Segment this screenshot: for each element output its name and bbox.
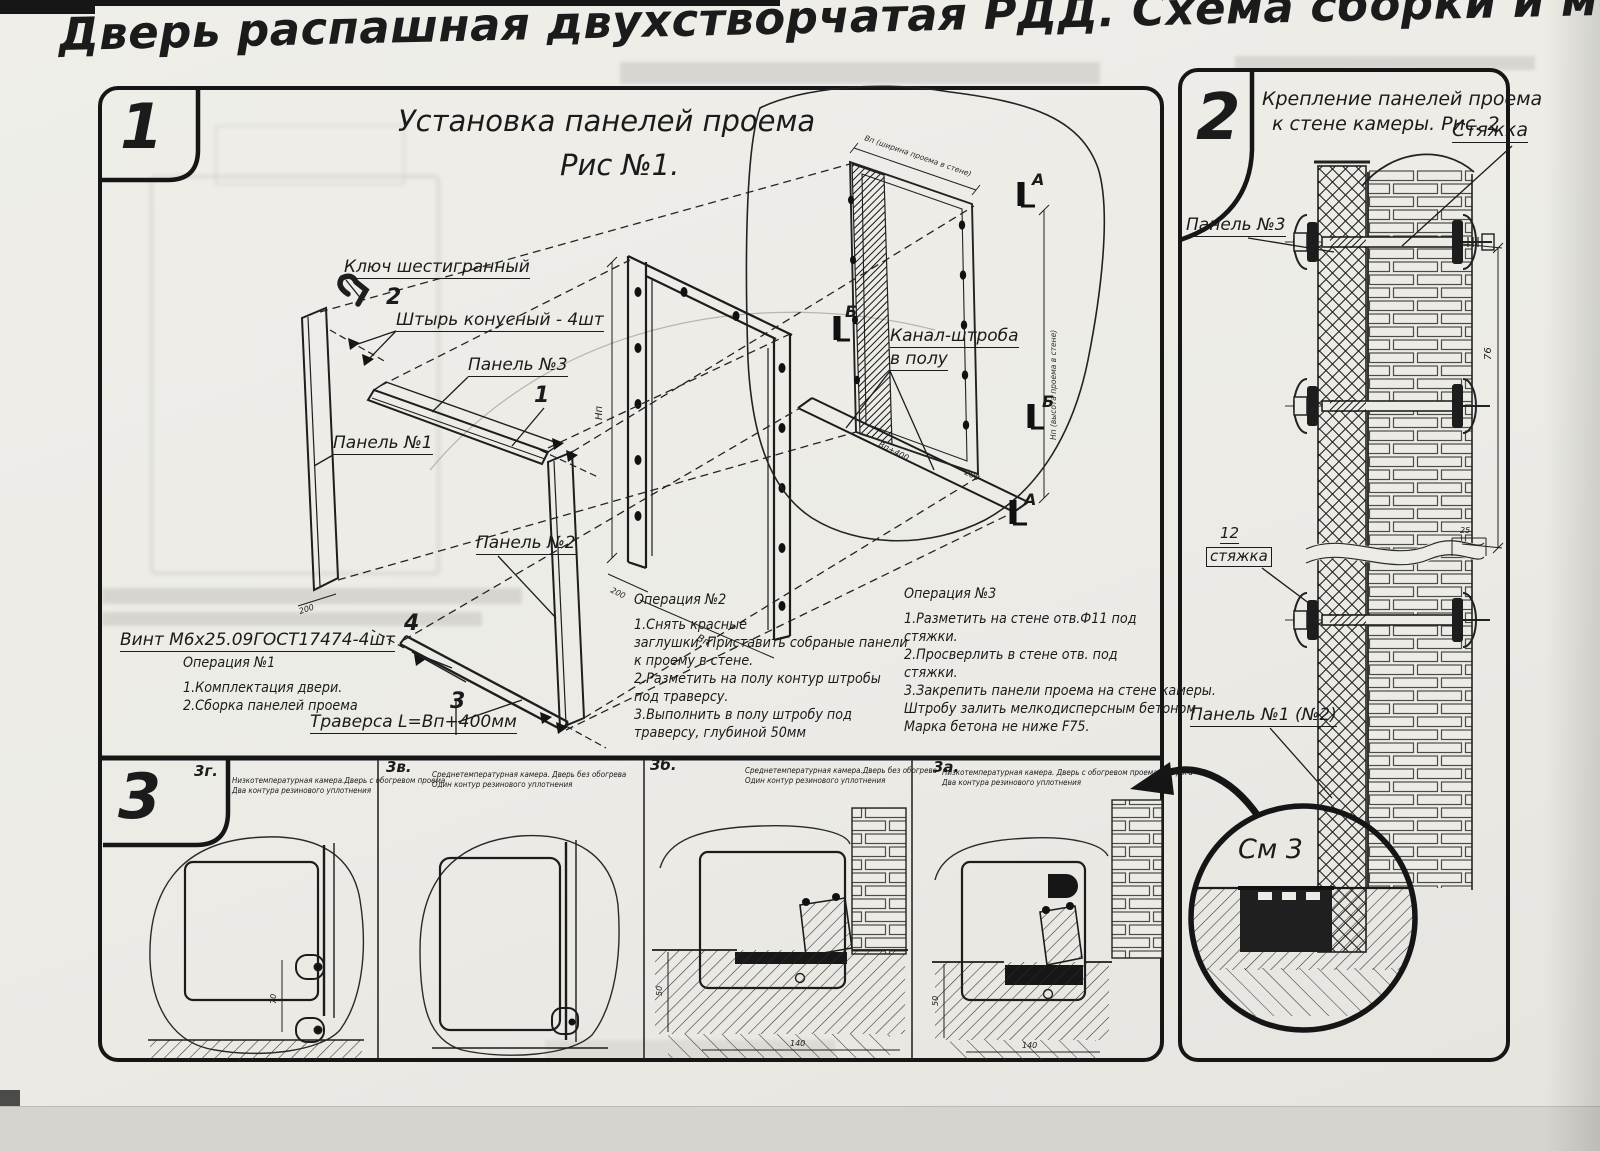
bleed-through-artifact: [620, 62, 1100, 84]
label-panel-2: Панель №2: [476, 534, 576, 555]
desc-line: Один контур резинового уплотнения: [745, 776, 937, 786]
label-cone-pin: Штырь конусный - 4шт: [396, 311, 604, 332]
section-3v-desc: Среднетемпературная камера. Дверь без об…: [432, 770, 626, 790]
op3-line: 1.Разметить на стене отв.Ф11 под: [904, 611, 1216, 629]
label-panel-3-section: Панель №3: [1186, 216, 1286, 237]
panel-2-number: 2: [1196, 86, 1241, 150]
section-3g-id: 3г.: [194, 762, 218, 780]
panel2-caption-line1: Крепление панелей проема: [1262, 88, 1542, 110]
op2-line: траверсу, глубиной 50мм: [634, 725, 908, 743]
panel-1-number: 1: [120, 96, 163, 158]
marker-b-right: Б: [1042, 392, 1054, 411]
label-tie-rod: Стяжка: [1452, 120, 1528, 143]
desc-line: Среднетемпературная камера. Дверь без об…: [432, 770, 626, 780]
desc-line: Низкотемпературная камера.Дверь с обогре…: [232, 776, 445, 786]
op1-line: 2.Сборка панелей проема: [183, 698, 358, 716]
label-traverse: Траверса L=Bп+400мм: [310, 713, 517, 734]
op3-line: 2.Просверлить в стене отв. под: [904, 647, 1216, 665]
operation-3-notes: Операция №3 1.Разметить на стене отв.Ф11…: [904, 586, 1216, 737]
marker-b-left: Б: [845, 302, 857, 321]
desc-line: Два контура резинового уплотнения: [942, 778, 1193, 788]
desc-line: Два контура резинового уплотнения: [232, 786, 445, 796]
scanner-bed: [0, 1106, 1600, 1151]
marker-a-top: А: [1032, 170, 1044, 189]
op1-title: Операция №1: [183, 655, 358, 673]
op3-line: 3.Закрепить панели проема на стене камер…: [904, 683, 1216, 701]
panel1-caption-line2: Рис №1.: [560, 148, 679, 182]
label-hex-key: Ключ шестигранный: [344, 258, 530, 279]
op3-line: Штробу залить мелкодисперсным бетоном: [904, 701, 1216, 719]
op2-line: 3.Выполнить в полу штробу под: [634, 707, 908, 725]
page-edge-shadow: [1545, 0, 1600, 1151]
operation-1-notes: Операция №1 1.Комплектация двери. 2.Сбор…: [183, 655, 358, 716]
op3-title: Операция №3: [904, 586, 1216, 604]
desc-line: Низкотемпературная камера. Дверь с обогр…: [942, 768, 1193, 778]
section-3b-desc: Среднетемпературная камера.Дверь без обо…: [745, 766, 937, 786]
pos-3: 3: [450, 690, 465, 714]
op2-line: к проему в стене.: [634, 653, 908, 671]
label-channel-line2: в полу: [890, 350, 948, 371]
section-3g-desc: Низкотемпературная камера.Дверь с обогре…: [232, 776, 445, 796]
pos-2: 2: [386, 286, 401, 310]
label-tie-boxed: стяжка: [1206, 547, 1272, 567]
label-panel-1: Панель №1: [333, 434, 433, 455]
pos-4: 4: [404, 612, 419, 636]
label-see-detail-3: См 3: [1238, 834, 1303, 865]
desc-line: Среднетемпературная камера.Дверь без обо…: [745, 766, 937, 776]
section-3a-desc: Низкотемпературная камера. Дверь с обогр…: [942, 768, 1193, 788]
pos-1: 1: [534, 384, 549, 408]
op3-line: стяжки.: [904, 665, 1216, 683]
op2-line: заглушки. Приставить собраные панели: [634, 635, 908, 653]
section-3v-id: 3в.: [386, 758, 412, 776]
panel-3-number: 3: [118, 766, 161, 828]
pos-12: 12: [1220, 525, 1239, 544]
operation-2-notes: Операция №2 1.Снять красные заглушки. Пр…: [634, 592, 908, 743]
desc-line: Один контур резинового уплотнения: [432, 780, 626, 790]
marker-a-bottom: А: [1024, 490, 1036, 509]
label-panel-1-2: Панель №1 (№2): [1190, 706, 1337, 727]
label-screw: Винт М6х25.09ГОСТ17474-4шт: [120, 631, 395, 652]
op1-line: 1.Комплектация двери.: [183, 680, 358, 698]
drawing-sheet: Дверь распашная двухстворчатая РДД. Схем…: [0, 0, 1600, 1151]
label-panel-3: Панель №3: [468, 356, 568, 377]
op3-line: Марка бетона не ниже F75.: [904, 719, 1216, 737]
sheet-title: Дверь распашная двухстворчатая РДД. Схем…: [58, 0, 1600, 61]
op2-line: 2.Разметить на полу контур штробы: [634, 671, 908, 689]
panel1-caption-line1: Установка панелей проема: [398, 104, 815, 138]
label-channel-line1: Канал-штроба: [890, 327, 1019, 348]
section-3b-id: 3б.: [650, 756, 677, 774]
op3-line: стяжки.: [904, 629, 1216, 647]
panel-1-frame: [98, 86, 1164, 1062]
op2-title: Операция №2: [634, 592, 908, 610]
op2-line: под траверсу.: [634, 689, 908, 707]
op2-line: 1.Снять красные: [634, 617, 908, 635]
